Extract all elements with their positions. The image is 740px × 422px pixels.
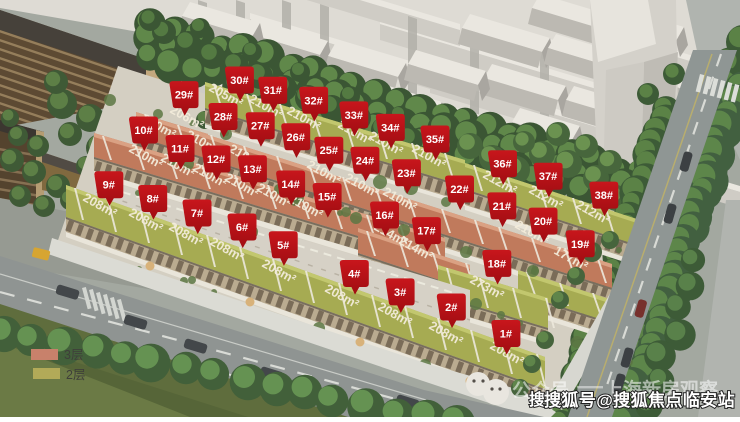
- svg-text:3#: 3#: [394, 287, 406, 299]
- svg-text:26#: 26#: [287, 132, 305, 144]
- svg-text:9#: 9#: [103, 180, 115, 192]
- svg-text:29#: 29#: [175, 90, 193, 102]
- svg-text:22#: 22#: [450, 184, 468, 196]
- svg-text:17#: 17#: [417, 226, 435, 238]
- svg-text:搜狐号@搜狐焦点临安站: 搜狐号@搜狐焦点临安站: [544, 390, 735, 410]
- svg-text:32#: 32#: [304, 95, 322, 107]
- svg-text:23#: 23#: [397, 168, 415, 180]
- svg-text:14#: 14#: [281, 179, 299, 191]
- svg-text:31#: 31#: [264, 85, 282, 97]
- svg-text:16#: 16#: [375, 210, 393, 222]
- svg-text:10#: 10#: [134, 125, 152, 137]
- svg-text:28#: 28#: [214, 112, 232, 124]
- svg-text:15#: 15#: [318, 192, 336, 204]
- svg-text:19#: 19#: [571, 239, 589, 251]
- svg-text:20#: 20#: [534, 216, 552, 228]
- svg-text:12#: 12#: [207, 154, 225, 166]
- svg-text:1#: 1#: [500, 329, 512, 341]
- svg-text:21#: 21#: [493, 201, 511, 213]
- svg-text:33#: 33#: [345, 110, 363, 122]
- svg-text:4#: 4#: [348, 269, 360, 281]
- svg-text:13#: 13#: [243, 164, 261, 176]
- svg-text:37#: 37#: [539, 171, 557, 183]
- svg-text:2层: 2层: [66, 368, 85, 382]
- svg-text:27#: 27#: [251, 121, 269, 133]
- svg-text:2#: 2#: [445, 302, 457, 314]
- svg-text:8#: 8#: [147, 194, 159, 206]
- svg-text:36#: 36#: [493, 159, 511, 171]
- svg-text:7#: 7#: [191, 208, 203, 220]
- svg-text:30#: 30#: [230, 75, 248, 87]
- svg-text:11#: 11#: [171, 144, 189, 156]
- svg-text:3层: 3层: [64, 348, 83, 362]
- svg-text:18#: 18#: [488, 258, 506, 270]
- svg-text:5#: 5#: [277, 240, 289, 252]
- svg-text:38#: 38#: [595, 190, 613, 202]
- svg-text:24#: 24#: [356, 155, 374, 167]
- svg-text:6#: 6#: [236, 222, 248, 234]
- svg-text:25#: 25#: [320, 145, 338, 157]
- svg-text:34#: 34#: [381, 122, 399, 134]
- svg-text:35#: 35#: [426, 134, 444, 146]
